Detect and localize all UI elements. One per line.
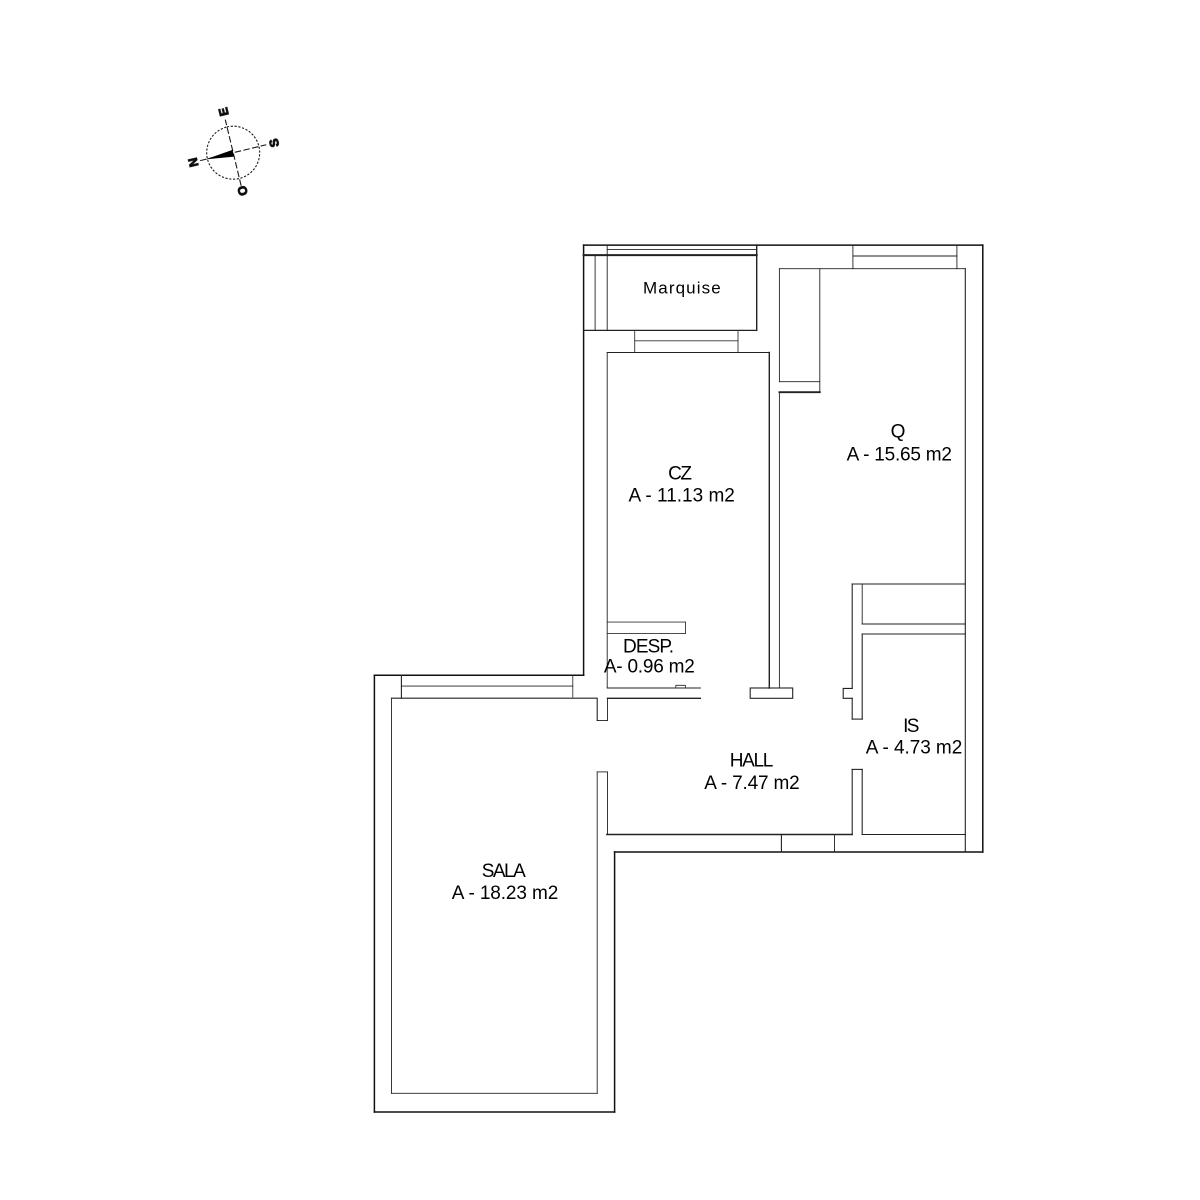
- svg-text:A - 18.23 m2: A - 18.23 m2: [452, 883, 558, 904]
- svg-text:A - 7.47 m2: A - 7.47 m2: [704, 773, 799, 794]
- svg-text:Q: Q: [891, 422, 906, 443]
- svg-text:IS: IS: [903, 716, 919, 737]
- svg-text:Marquise: Marquise: [643, 279, 722, 298]
- svg-text:O: O: [235, 184, 251, 197]
- svg-text:A - 4.73 m2: A - 4.73 m2: [866, 737, 962, 758]
- svg-text:A - 15.65 m2: A - 15.65 m2: [847, 444, 952, 465]
- svg-text:CZ: CZ: [668, 463, 692, 484]
- svg-text:A- 0.96 m2: A- 0.96 m2: [604, 656, 695, 677]
- svg-text:N: N: [186, 156, 202, 168]
- svg-text:SALA: SALA: [482, 861, 526, 882]
- svg-text:A - 11.13 m2: A - 11.13 m2: [629, 486, 735, 507]
- svg-text:HALL: HALL: [730, 751, 773, 772]
- svg-text:DESP.: DESP.: [623, 637, 673, 658]
- svg-text:S: S: [267, 137, 283, 148]
- svg-text:E: E: [216, 106, 232, 117]
